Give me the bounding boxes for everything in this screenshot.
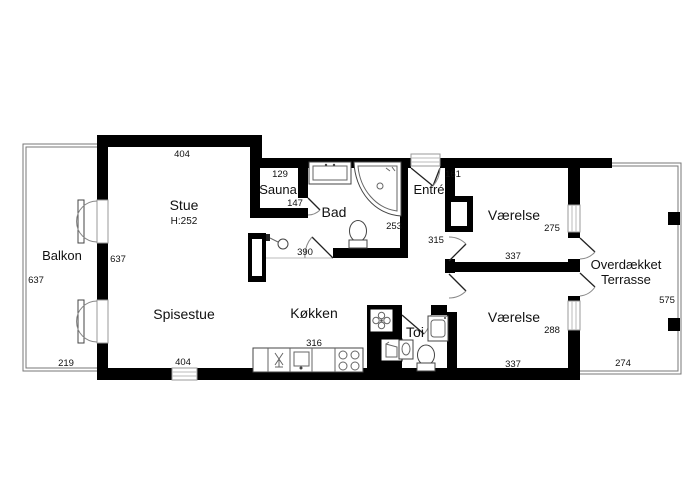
- room-label-stue: Stue: [170, 197, 199, 213]
- dim-stue-top: 404: [174, 149, 190, 160]
- vaerelse2-door: [449, 274, 466, 298]
- floorplan-drawing: Balkon Stue H:252 Spisestue Sauna Bad Kø…: [0, 0, 700, 500]
- dim-terrasse-side: 575: [659, 295, 675, 306]
- dim-kokken-counter: 316: [306, 338, 322, 349]
- dim-hall-length: 315: [428, 235, 444, 246]
- dim-vaerelse1-depth: 275: [544, 223, 560, 234]
- sink-icon: [309, 162, 351, 184]
- toi-toilet-icon: [417, 345, 435, 371]
- room-label-terrasse-line2: Terrasse: [601, 272, 651, 287]
- toilet-icon: [349, 221, 367, 249]
- room-label-vaerelse1: Værelse: [488, 207, 540, 223]
- shaft-column: [248, 233, 266, 282]
- room-label-terrasse-line1: Overdækket: [591, 257, 662, 272]
- dim-spisestue-window: 404: [175, 357, 191, 368]
- window-vaerelse1: [568, 205, 580, 232]
- dim-bad-width: 390: [297, 247, 313, 258]
- room-label-balkon: Balkon: [42, 248, 82, 263]
- dim-vaerelse2-width: 337: [505, 359, 521, 370]
- room-label-toi: Toi: [406, 324, 424, 340]
- utility-column: [367, 305, 402, 372]
- dim-vaerelse1-width: 337: [505, 251, 521, 262]
- room-label-spisestue: Spisestue: [153, 306, 215, 322]
- dim-entre-width: 161: [445, 169, 461, 180]
- bathtub-icon: [354, 162, 401, 216]
- sauna-door: [308, 198, 320, 215]
- floorplan-canvas: Balkon Stue H:252 Spisestue Sauna Bad Kø…: [0, 0, 700, 500]
- terrace-door-2: [580, 273, 595, 296]
- terrace-post: [668, 318, 680, 331]
- room-label-vaerelse2: Værelse: [488, 309, 540, 325]
- dim-left-wall: 637: [110, 254, 126, 265]
- kitchen-counter: [253, 348, 363, 372]
- vaerelse1-door: [449, 237, 466, 261]
- dim-sauna-width: 129: [272, 169, 288, 180]
- wardrobe: [445, 196, 473, 232]
- terrace-post: [668, 212, 680, 225]
- toi-sink-icon: [399, 340, 413, 359]
- window-spisestue: [172, 368, 197, 380]
- dim-terrasse-bottom: 274: [615, 358, 631, 369]
- window-vaerelse2: [568, 301, 580, 330]
- dim-sauna-depth: 147: [287, 198, 303, 209]
- balcony-door-lower: [77, 300, 109, 343]
- room-height-stue: H:252: [171, 216, 198, 227]
- washing-machine-icon: [428, 316, 448, 341]
- balcony-door-upper: [77, 200, 109, 243]
- dim-balkon-side: 637: [28, 275, 44, 286]
- terrace-door-1: [580, 238, 595, 259]
- dim-vaerelse2-depth: 288: [544, 325, 560, 336]
- entrance-threshold: [411, 154, 440, 166]
- room-label-bad: Bad: [322, 204, 347, 220]
- room-label-kokken: Køkken: [290, 305, 337, 321]
- shower-icon: [266, 234, 288, 249]
- room-label-entre: Entré: [413, 182, 444, 197]
- room-label-sauna: Sauna: [259, 182, 297, 197]
- dim-balkon-bottom: 219: [58, 358, 74, 369]
- dim-bad-depth: 253: [386, 221, 402, 232]
